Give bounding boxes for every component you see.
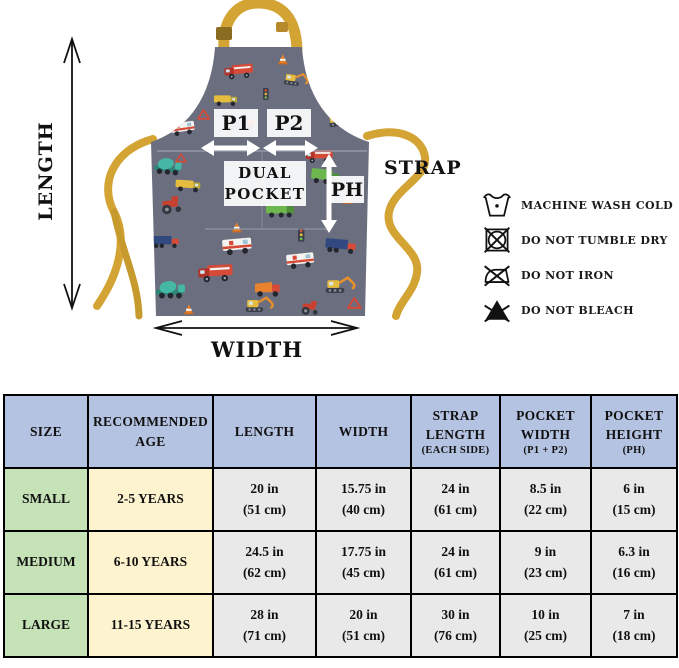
do-not-bleach-icon: [482, 295, 512, 325]
header-label: POCKET HEIGHT: [605, 408, 664, 443]
value-cm: (23 cm): [501, 563, 590, 584]
header-label: POCKET WIDTH: [516, 408, 575, 443]
col-header-width: WIDTH: [316, 395, 411, 468]
header-sublabel: (EACH SIDE): [412, 445, 499, 458]
value-cm: (61 cm): [412, 563, 499, 584]
care-label: MACHINE WASH COLD: [521, 199, 673, 212]
p1-pocket-label: P1: [214, 109, 258, 137]
pocket-width-cell: 8.5 in (22 cm): [500, 468, 591, 531]
size-row-large: LARGE 11-15 YEARS 28 in (71 cm) 20 in (5…: [4, 594, 677, 657]
value-in: 7 in: [592, 605, 676, 626]
size-row-small: SMALL 2-5 YEARS 20 in (51 cm) 15.75 in (…: [4, 468, 677, 531]
value-cm: (71 cm): [214, 626, 315, 647]
p2-pocket-label: P2: [267, 109, 311, 137]
size-chart-table: SIZE RECOMMENDED AGE LENGTH WIDTH STRAP …: [3, 394, 678, 658]
value-cm: (18 cm): [592, 626, 676, 647]
do-not-iron-icon: [482, 260, 512, 290]
width-cell: 20 in (51 cm): [316, 594, 411, 657]
width-cell: 17.75 in (45 cm): [316, 531, 411, 594]
col-header-strap-length: STRAP LENGTH (EACH SIDE): [411, 395, 500, 468]
col-header-pocket-width: POCKET WIDTH (P1 + P2): [500, 395, 591, 468]
width-arrow: [156, 321, 357, 335]
value-cm: (22 cm): [501, 500, 590, 521]
care-row-no-bleach: DO NOT BLEACH: [482, 295, 678, 325]
value-in: 9 in: [501, 542, 590, 563]
value-cm: (15 cm): [592, 500, 676, 521]
value-in: 10 in: [501, 605, 590, 626]
care-label: DO NOT BLEACH: [521, 304, 634, 317]
pocket-height-cell: 7 in (18 cm): [591, 594, 677, 657]
strap-label: STRAP: [384, 157, 462, 179]
header-sublabel: (PH): [592, 445, 676, 458]
length-label: LENGTH: [35, 121, 57, 221]
length-cell: 24.5 in (62 cm): [213, 531, 316, 594]
col-header-length: LENGTH: [213, 395, 316, 468]
header-label: WIDTH: [339, 424, 389, 439]
value-in: 24 in: [412, 479, 499, 500]
care-instructions: MACHINE WASH COLD DO NOT TUMBLE DRY DO N…: [482, 190, 678, 330]
value-in: 20 in: [214, 479, 315, 500]
strap-length-cell: 30 in (76 cm): [411, 594, 500, 657]
value-cm: (16 cm): [592, 563, 676, 584]
value-cm: (25 cm): [501, 626, 590, 647]
value-in: 6.3 in: [592, 542, 676, 563]
header-label: SIZE: [30, 424, 62, 439]
apron-neck-strap: [216, 3, 297, 50]
value-in: 15.75 in: [317, 479, 410, 500]
size-cell: MEDIUM: [4, 531, 88, 594]
age-cell: 2-5 YEARS: [88, 468, 213, 531]
value-cm: (51 cm): [317, 626, 410, 647]
value-cm: (51 cm): [214, 500, 315, 521]
care-row-machine-wash: MACHINE WASH COLD: [482, 190, 678, 220]
pocket-width-cell: 10 in (25 cm): [500, 594, 591, 657]
dual-pocket-label-line2: POCKET: [225, 184, 306, 204]
col-header-size: SIZE: [4, 395, 88, 468]
care-label: DO NOT TUMBLE DRY: [521, 234, 668, 247]
header-label: LENGTH: [235, 424, 295, 439]
header-row: SIZE RECOMMENDED AGE LENGTH WIDTH STRAP …: [4, 395, 677, 468]
age-cell: 6-10 YEARS: [88, 531, 213, 594]
strap-length-cell: 24 in (61 cm): [411, 531, 500, 594]
size-row-medium: MEDIUM 6-10 YEARS 24.5 in (62 cm) 17.75 …: [4, 531, 677, 594]
size-cell: SMALL: [4, 468, 88, 531]
value-in: 24 in: [412, 542, 499, 563]
width-cell: 15.75 in (40 cm): [316, 468, 411, 531]
value-cm: (40 cm): [317, 500, 410, 521]
age-cell: 11-15 YEARS: [88, 594, 213, 657]
col-header-recommended-age: RECOMMENDED AGE: [88, 395, 213, 468]
product-size-chart-image: LENGTH WIDTH STRAP P1 P2 DUAL POCKET PH …: [0, 0, 679, 668]
size-cell: LARGE: [4, 594, 88, 657]
dual-pocket-label-line1: DUAL: [238, 163, 292, 183]
care-label: DO NOT IRON: [521, 269, 614, 282]
pocket-width-cell: 9 in (23 cm): [500, 531, 591, 594]
value-in: 6 in: [592, 479, 676, 500]
pocket-height-label: PH: [330, 176, 364, 203]
pocket-height-cell: 6 in (15 cm): [591, 468, 677, 531]
value-in: 30 in: [412, 605, 499, 626]
length-cell: 20 in (51 cm): [213, 468, 316, 531]
pocket-height-cell: 6.3 in (16 cm): [591, 531, 677, 594]
value-in: 24.5 in: [214, 542, 315, 563]
header-sublabel: (P1 + P2): [501, 445, 590, 458]
value-cm: (45 cm): [317, 563, 410, 584]
care-row-no-iron: DO NOT IRON: [482, 260, 678, 290]
value-in: 28 in: [214, 605, 315, 626]
care-row-no-tumble-dry: DO NOT TUMBLE DRY: [482, 225, 678, 255]
machine-wash-cold-icon: [482, 190, 512, 220]
value-in: 20 in: [317, 605, 410, 626]
value-cm: (61 cm): [412, 500, 499, 521]
col-header-pocket-height: POCKET HEIGHT (PH): [591, 395, 677, 468]
header-label: STRAP LENGTH: [426, 408, 486, 443]
dual-pocket-label: DUAL POCKET: [224, 161, 306, 206]
strap-length-cell: 24 in (61 cm): [411, 468, 500, 531]
width-label: WIDTH: [211, 337, 303, 362]
value-cm: (62 cm): [214, 563, 315, 584]
length-arrow: [64, 39, 80, 308]
value-cm: (76 cm): [412, 626, 499, 647]
value-in: 17.75 in: [317, 542, 410, 563]
value-in: 8.5 in: [501, 479, 590, 500]
length-cell: 28 in (71 cm): [213, 594, 316, 657]
header-label: RECOMMENDED AGE: [93, 414, 208, 449]
do-not-tumble-dry-icon: [482, 225, 512, 255]
